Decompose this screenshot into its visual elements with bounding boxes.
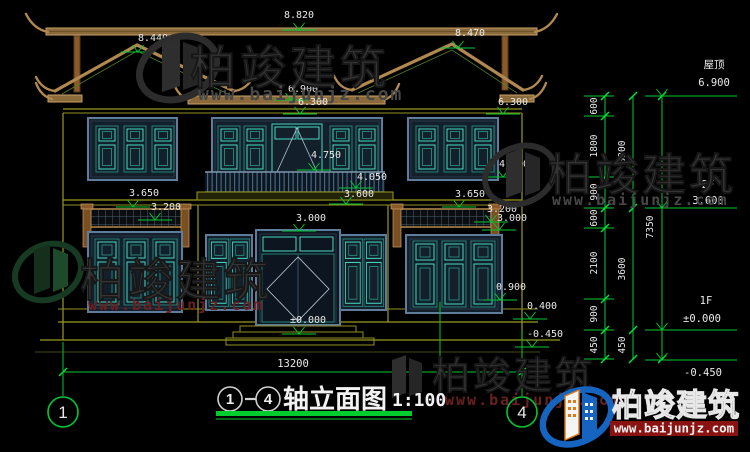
watermark-top: 柏竣建筑 www.baijunjz.com	[129, 24, 403, 111]
entry-steps	[226, 326, 374, 345]
dim-ground: -0.450	[527, 329, 563, 340]
title-block: 1 4 轴立面图 1:100	[216, 384, 446, 419]
axis-left-number: 1	[58, 403, 67, 422]
gable-post-right	[502, 36, 508, 90]
title-underline	[216, 411, 412, 416]
watermark-right-url: www.baijunjz.com	[552, 191, 729, 209]
dim-entry-level: ±0.000	[290, 315, 326, 326]
chain-inner-5: 900	[589, 305, 600, 322]
dim-trellis-left-top: 3.650	[129, 188, 159, 199]
dim-ridge-right: 8.470	[455, 28, 485, 39]
elevation-drawing: 8.440 8.820 8.470 6.900 6.300 4.750 4.05…	[0, 0, 750, 452]
chain-inner-4: 2100	[589, 251, 600, 274]
dim-window-1f-right-sill: 0.900	[496, 282, 526, 293]
chain-mid-1: 3600	[617, 257, 628, 280]
chain-outer: 7350	[645, 215, 656, 238]
dim-plinth-top: 0.400	[527, 301, 557, 312]
chain-inner-0: 600	[589, 97, 600, 114]
flag-1f-value: ±0.000	[683, 313, 721, 325]
flag-1f-label: 1F	[700, 295, 713, 307]
cad-elevation-screenshot: 8.440 8.820 8.470 6.900 6.300 4.750 4.05…	[0, 0, 750, 452]
window-group-2f-left	[88, 118, 177, 180]
brand-logo-url: www.baijunjz.com	[614, 421, 735, 436]
dim-opening-1f-top: 3.000	[296, 213, 326, 224]
ridge-tip-left	[26, 14, 48, 32]
watermark-left-url: www.baijunjz.com	[88, 296, 265, 314]
level-flags: 屋顶 6.900 2F 3.600 1F ±0.000 -0.450	[645, 59, 737, 379]
dim-trellis-right-top: 3.650	[455, 189, 485, 200]
drawing-scale: 1:100	[392, 390, 446, 411]
flag-ground-value: -0.450	[684, 367, 722, 379]
axis-right-number: 4	[517, 403, 526, 422]
brand-logo-tower-white	[565, 390, 579, 440]
dim-overall-width: 13200	[277, 358, 309, 370]
chain-inner-3: 600	[589, 209, 600, 226]
gable-post-left	[74, 36, 80, 92]
brand-logo-tower-blue	[582, 392, 597, 444]
flag-roof-label: 屋顶	[704, 59, 725, 71]
drawing-title: 轴立面图	[283, 384, 387, 415]
levels-panel: 600 1800 900 600 2100 900 450 3300 3600 …	[584, 59, 737, 379]
dim-balcony-floor: 3.600	[344, 189, 374, 200]
chain-inner-6: 450	[589, 336, 600, 353]
chain-mid-2: 450	[617, 336, 628, 353]
axis-bubble-left: 1	[48, 397, 78, 427]
ridge-tip-right	[535, 14, 557, 32]
dim-trellis-right-inner: 3.000	[497, 213, 527, 224]
brand-logo-name: 柏竣建筑	[612, 388, 740, 424]
dim-railing-top: 4.050	[357, 172, 387, 183]
dim-door-2f-top: 4.750	[311, 150, 341, 161]
title-axis-from: 1	[226, 391, 234, 408]
dim-ridge-main: 8.820	[284, 10, 314, 21]
watermark-right: 柏竣建筑 www.baijunjz.com	[476, 135, 736, 215]
title-axis-to: 4	[264, 391, 273, 408]
flag-roof-value: 6.900	[698, 77, 730, 89]
watermark-top-url: www.baijunjz.com	[198, 84, 403, 105]
windows-2f	[88, 118, 498, 180]
dim-trellis-left-bottom: 3.200	[151, 202, 181, 213]
dim-window-2f-right-top: 6.300	[498, 97, 528, 108]
